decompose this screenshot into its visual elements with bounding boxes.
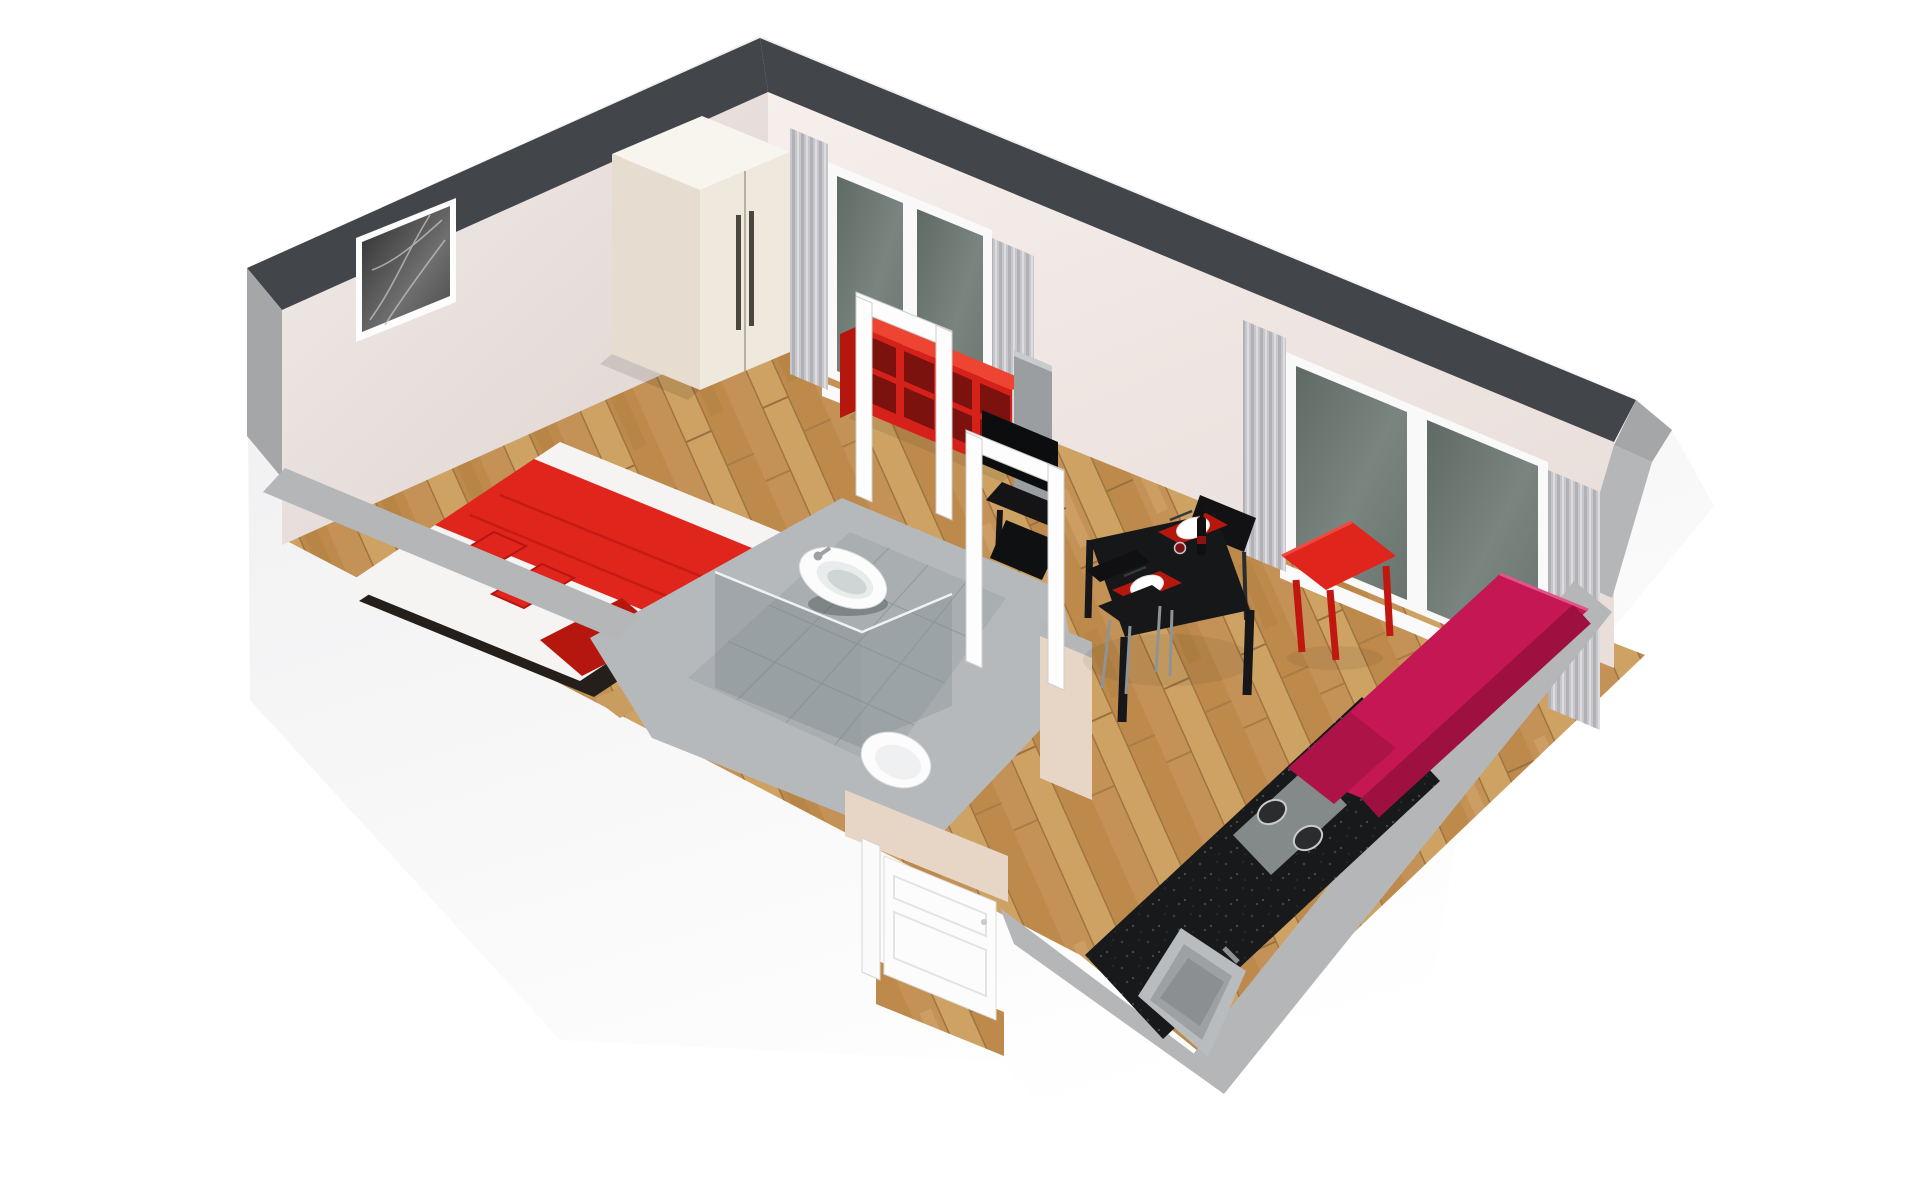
- door-handle: [981, 919, 987, 925]
- bottle-label: [1197, 536, 1206, 544]
- door-jamb-left: [862, 838, 880, 980]
- floorplan-render: [0, 0, 1915, 1200]
- table-leg-2: [1247, 610, 1250, 695]
- wine-glass: [1175, 543, 1186, 554]
- wardrobe: [600, 116, 790, 400]
- wardrobe-handle-right: [749, 211, 754, 326]
- wardrobe-handle-left: [736, 215, 741, 330]
- table-leg-3: [1088, 540, 1090, 618]
- wardrobe-side: [612, 154, 700, 390]
- bottle-neck: [1200, 506, 1204, 520]
- floorplan-canvas: [0, 0, 1915, 1200]
- curtain-bedroom-left: [790, 128, 828, 390]
- shelf-side: [840, 326, 858, 418]
- table-leg-1: [1122, 637, 1125, 722]
